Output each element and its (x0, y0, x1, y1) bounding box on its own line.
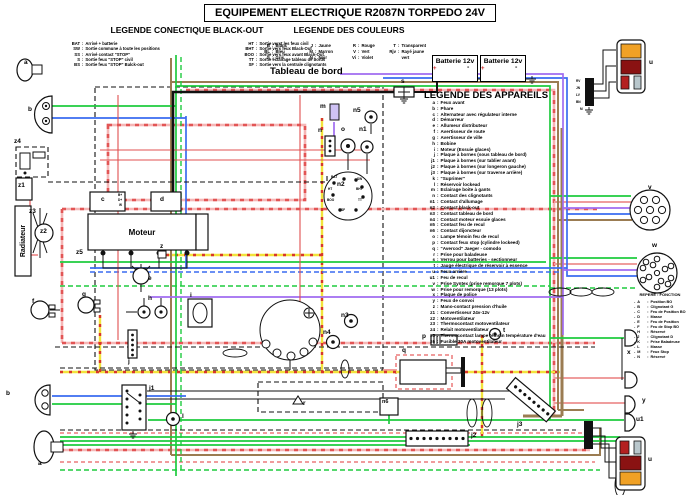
trailer-socket-v (630, 190, 670, 230)
trailer-socket-w (637, 253, 677, 293)
terminal-j2 (406, 431, 468, 446)
legend-couleurs-col2: J:JauneM:MarronN:Noir (303, 43, 333, 61)
component-label: D+ (118, 199, 122, 202)
battery-2: Batterie 12v (480, 55, 526, 82)
tank-sender-l (167, 413, 180, 426)
legend-row: Vi:Violet (346, 55, 375, 61)
reverse-lamp-u1 (625, 414, 635, 431)
component-label: n2 (337, 182, 345, 189)
component-label: SW (357, 178, 362, 181)
rear-lamp-u-top (617, 40, 645, 93)
legend-couleurs-col3: R:RougeV:VertVi:Violet (346, 43, 375, 61)
component-label: BN (576, 101, 581, 104)
wiper-motor-i (188, 299, 212, 327)
coil-h (138, 306, 167, 318)
component-label: l (182, 414, 184, 421)
oil-switch-z (158, 251, 166, 258)
comodo-q (400, 357, 465, 387)
component-label: z2 (40, 229, 47, 236)
component-label: r (303, 401, 306, 408)
legend-row: BS:Sortie feux "STOP" Balck-out (66, 62, 160, 67)
component-label: z3 (29, 209, 36, 216)
component-label: B+ (118, 194, 122, 197)
front-light-a-top (17, 59, 42, 81)
cutoff-s (394, 87, 414, 97)
component-label: n5 (353, 108, 361, 115)
wiper-switch-n4 (327, 336, 340, 349)
component-label: b (28, 107, 32, 114)
component-label: RV (576, 80, 580, 83)
dash-loop-pink-stripe (108, 125, 305, 200)
headlight-b-bottom (35, 385, 50, 415)
component-label: z4 (14, 139, 21, 146)
component-label: BHT (356, 188, 363, 191)
reverse-switch-n5 (365, 111, 377, 123)
starter-d (151, 192, 181, 211)
component-label: SF (341, 209, 345, 212)
wiring-diagram: EQUIPEMENT ELECTRIQUE R2087N TORPEDO 24V… (0, 0, 700, 495)
component-label: b (6, 391, 10, 398)
terminal-j (128, 330, 137, 358)
battery-1: Batterie 12v (432, 55, 478, 82)
component-label: a (38, 461, 42, 468)
tableau-de-bord-label: Tableau de bord (270, 66, 343, 77)
legend-row: N:Noir (303, 55, 333, 61)
horn-g (78, 297, 100, 313)
component-label: s (401, 79, 405, 86)
indicator-switch-n (325, 136, 335, 156)
component-label: m (320, 104, 326, 111)
component-label: x (627, 350, 631, 357)
rear-lamp-u-bottom (616, 437, 645, 490)
component-label: TT (358, 199, 362, 202)
column-switch (260, 300, 320, 360)
component-label: z5 (76, 250, 83, 257)
component-label: g (82, 292, 86, 299)
legend-connectique-col1: BAT:Arrivé + batterieSW:Sortie commune à… (66, 41, 160, 67)
radiator-label: Radiateur (16, 206, 31, 276)
connector-block-bottom (584, 421, 593, 449)
component-label: - (515, 64, 517, 71)
component-label: h (148, 296, 152, 303)
socket-r (293, 396, 303, 404)
component-label: M (580, 108, 583, 111)
component-label: n (318, 128, 322, 135)
component-label: n1 (359, 127, 367, 134)
component-label: - (467, 64, 469, 71)
legend-couleurs-col4: T:TransparentRjv:Rayé jaune vert (386, 43, 432, 61)
component-label: + (481, 66, 485, 72)
component-label: c (101, 197, 105, 204)
component-label: w (652, 243, 657, 250)
legend-connectique-title: LEGENDE CONECTIQUE BLACK-OUT (97, 25, 277, 35)
component-label: n3 (341, 313, 349, 320)
component-label: BAT (331, 176, 337, 179)
legend-row: z6:Fusible 30A motoventilateur (424, 339, 546, 345)
legend-couleurs-col1: B:BlancBL:BleuG:Gris (260, 43, 287, 61)
component-label: HT (328, 188, 332, 191)
component-label: o (341, 127, 345, 134)
component-label: LV (576, 94, 580, 97)
component-label: y (642, 398, 646, 405)
repere-title: REPERE : FONCTION (630, 292, 690, 297)
component-label: JN (576, 87, 580, 90)
baladeuse-box (258, 382, 383, 412)
glovebox-lamp-m (330, 104, 339, 120)
component-label: v (648, 185, 652, 192)
component-label: j1 (149, 386, 154, 393)
component-label: n6 (382, 400, 388, 406)
component-label: e (148, 276, 152, 283)
component-label: d (160, 197, 164, 204)
legend-appareils-list: a:Feux avantb:Pharec:Alternateur avec ré… (424, 100, 546, 345)
component-label: j2 (471, 433, 476, 440)
warning-lamp-o (341, 139, 355, 153)
terminal-j1 (122, 385, 146, 430)
dash-loop-pink (108, 125, 305, 200)
component-label: W (119, 204, 122, 207)
convoy-lamp-y (625, 396, 635, 413)
component-label: a (24, 60, 28, 67)
component-label: j (128, 359, 130, 366)
component-label: u1 (636, 417, 644, 424)
ignition-switch-n1 (361, 141, 373, 153)
component-label: z (160, 244, 163, 251)
repere-row: -N:Réservé (634, 355, 686, 360)
component-label: i (190, 293, 192, 300)
component-label: q (402, 348, 406, 355)
relay-z4 (20, 152, 45, 175)
component-label: n4 (323, 330, 331, 337)
legend-couleurs-title: LEGENDE DES COULEURS (288, 25, 410, 35)
component-label: p (422, 334, 426, 341)
page-title: EQUIPEMENT ELECTRIQUE R2087N TORPEDO 24V (204, 4, 496, 22)
component-label: + (433, 66, 437, 72)
engine-label: Moteur (88, 214, 196, 250)
component-label: t (503, 328, 505, 335)
component-label: BOO (327, 199, 334, 202)
repere-list: -A:Position BO-B:Clignotant G-C:Feu de P… (634, 300, 686, 360)
legend-row: Rjv:Rayé jaune vert (386, 49, 432, 61)
component-label: u (648, 457, 652, 464)
front-light-a-bottom (34, 431, 63, 463)
component-label: u (649, 60, 653, 67)
connector-block-top (585, 78, 594, 106)
legend-row: G:Gris (260, 55, 287, 61)
component-label: j3 (517, 422, 522, 429)
component-label: f (32, 299, 34, 306)
headlight-b-top (35, 96, 52, 133)
component-label: z1 (18, 183, 25, 190)
